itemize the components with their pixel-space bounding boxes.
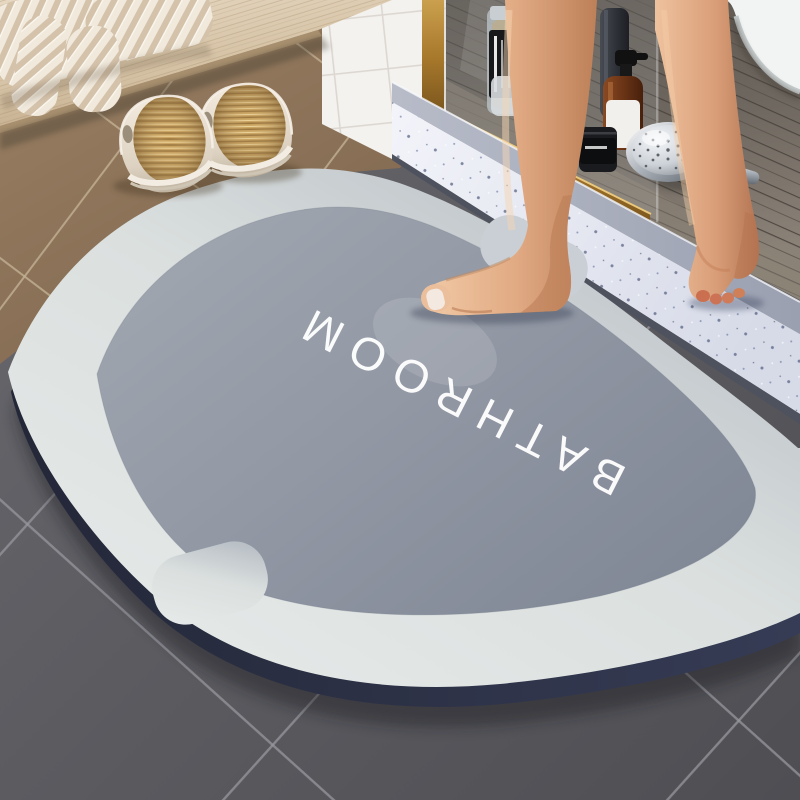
scene-canvas: BATHROOM <box>0 0 800 800</box>
bathroom-scene: BATHROOM <box>0 0 800 800</box>
black-jar <box>579 127 617 172</box>
